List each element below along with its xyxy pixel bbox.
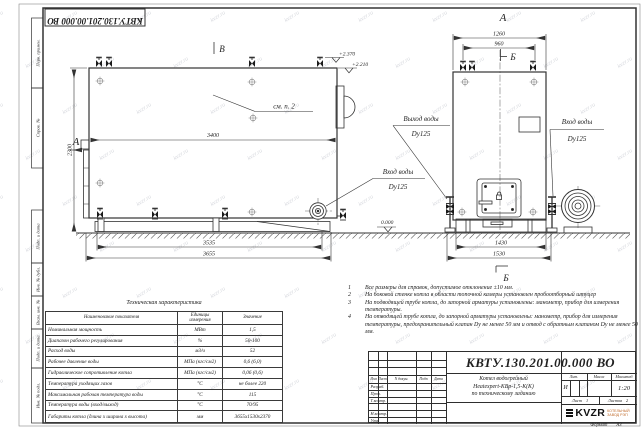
tech-row-value: 50-100 [223, 336, 282, 347]
kvzr-logo: KVZR КОТЕЛЬНЫЙ ЗАВОД РЭП [561, 404, 635, 422]
inlet-water-text: Вход воды [562, 118, 593, 126]
boiler-body-front [453, 72, 546, 220]
elev-2370: +2.370 [339, 52, 355, 58]
tech-row-unit: м3/ч [178, 347, 223, 358]
sampling-fitting-icon [249, 114, 258, 123]
sheets-cell: Листов 2 [599, 396, 637, 404]
margin-label: Инв. № дубл. [35, 267, 40, 293]
air-valve-icon [249, 58, 255, 69]
sheet-cell: Лист 1 [561, 396, 599, 404]
flue-outlet [344, 96, 355, 118]
safety-valve-icon [106, 58, 112, 69]
side-view-drawing: 3400 2300 3535 3655 А В [68, 42, 426, 262]
inlet-pipe-valve [547, 197, 557, 232]
mass-header: Масса [587, 373, 611, 380]
sheet-label: Лист [572, 398, 582, 403]
lifting-lug-icon [248, 208, 257, 217]
row-utv: Утв. [371, 418, 380, 423]
name-line: Котел водогрейный [479, 376, 528, 384]
row-nkontr: Н.контр. [371, 411, 388, 416]
tech-row-name: Температура воды (вход/выход) [46, 401, 178, 412]
lifting-lug-icon [530, 78, 539, 87]
title-block: КВТУ.130.201.00.000 ВО Котел водогрейный… [368, 351, 636, 423]
notes-block: 1 Все размеры для справок, допустимое от… [343, 285, 639, 336]
mark-b-label: В [219, 44, 225, 54]
tech-col-header: Значение [223, 312, 282, 325]
lifting-lug-icon [529, 208, 538, 217]
tech-row-unit: МВт [178, 325, 223, 336]
tech-row-name: Температура уходящих газов [46, 379, 178, 390]
margin-label: Подп. и дата [35, 223, 40, 251]
section-b-bottom: Б [496, 266, 509, 283]
note-number: 2 [343, 292, 365, 299]
note-text: На отводящей трубе котла, до запорной ар… [365, 314, 639, 336]
note-item: 2 На боковой стенке котла в области топо… [343, 292, 639, 299]
lit-value: И [561, 380, 570, 396]
rear-drain-valve-icon [340, 210, 346, 221]
tech-row-name: Максимальная рабочая температура воды [46, 390, 178, 401]
ground-line [76, 233, 630, 239]
tech-row-name: Диапазон рабочего регулирования [46, 336, 178, 347]
see-note-text: см. п. 2 [273, 103, 295, 111]
dim-960: 960 [495, 42, 504, 48]
sheets-value: 2 [626, 398, 628, 403]
lifting-lug-icon [248, 78, 257, 87]
inlet-water-text: Вход воды [383, 168, 414, 176]
sheet-value: 1 [586, 398, 588, 403]
tech-row-value: 0,6 (6,0) [223, 357, 282, 368]
safety-valve-icon [469, 62, 475, 73]
dim-1260: 1260 [493, 32, 505, 38]
row-razrab: Разраб. [371, 384, 385, 389]
logo-text: KVZR [575, 407, 605, 419]
inlet-dy-text: Dy125 [567, 135, 587, 143]
outlet-water-text: Выход воды [403, 115, 439, 123]
margin-stamp-column: Перв. примен. Справ. № Подп. и дата Инв.… [32, 18, 44, 423]
tech-row-name: Рабочее давление воды [46, 357, 178, 368]
elevation-marks: +2.370 +2.210 [325, 52, 368, 73]
tech-row-value: 70/95 [223, 401, 282, 412]
col-list: Лист [378, 375, 387, 383]
margin-label: Инв. № подл. [35, 383, 40, 409]
see-note-callout: см. п. 2 [213, 95, 313, 112]
lit-header: Лит. [561, 373, 587, 380]
scale-header: Масштаб [611, 373, 637, 380]
front-top-dimensions: 1260 960 [453, 32, 546, 71]
tech-characteristics-table: Техническая характеристика Наименование … [45, 300, 283, 423]
side-ladder [84, 150, 90, 218]
tech-row-unit: МПа (кгс/см2) [178, 357, 223, 368]
col-izm: Изм [369, 375, 378, 383]
front-inlet-label: Вход воды Dy125 [550, 118, 604, 196]
tech-row-value: не более 220 [223, 379, 282, 390]
tech-row-unit: °С [178, 390, 223, 401]
outlet-dy-text: Dy125 [411, 130, 431, 138]
col-ndokum: N докум. [387, 375, 416, 383]
safety-valve-icon [96, 58, 102, 69]
zero-elevation-mark: 0.000 [377, 220, 396, 232]
inlet-dy-text: Dy125 [388, 183, 408, 191]
col-data: Дата [431, 375, 446, 383]
tech-row-name: Габариты котла (длина х ширина х высота) [46, 411, 178, 422]
logo-bars-icon [566, 409, 573, 418]
lifting-lug-icon [96, 77, 105, 86]
dim-1430: 1430 [495, 240, 507, 247]
note-item: 3 На подводящей трубе котла, до запорной… [343, 300, 639, 315]
note-number: 4 [343, 314, 365, 336]
side-inlet-label: Вход воды Dy125 [326, 168, 425, 206]
tech-col-header: Наименование показателя [46, 312, 178, 325]
front-base [456, 219, 546, 232]
tech-row-value: 0,06 (0,6) [223, 368, 282, 379]
sheets-label: Листов [608, 398, 622, 403]
name-line: по техническому заданию [472, 391, 536, 399]
tech-row-name: Номинальная мощность [46, 325, 178, 336]
margin-label: Подп. и дата [35, 335, 40, 363]
tech-row-unit: МПа (кгс/см2) [178, 368, 223, 379]
margin-label: Перв. примен. [35, 39, 40, 67]
nameplate [519, 117, 540, 132]
drawing-sheet: kvzr.rukvzr.rukvzr.rukvzr.rukvzr.rukvzr.… [0, 0, 644, 430]
tech-row-unit: мм [178, 411, 223, 422]
note-text: На боковой стенке котла в области топочн… [365, 292, 639, 299]
tech-col-header: Единицы измерения [178, 312, 223, 325]
dim-3535: 3535 [202, 241, 215, 247]
inlet-flange [305, 198, 332, 225]
side-dimensions: 3400 2300 3535 3655 [68, 68, 336, 262]
note-item: 4 На отводящей трубе котла, до запорной … [343, 314, 639, 336]
dim-3400: 3400 [206, 132, 219, 139]
side-pipe-stub [81, 140, 89, 149]
furnace-door [477, 179, 521, 217]
tech-row-name: Гидравлическое сопротивление котла [46, 368, 178, 379]
format-value: А3 [616, 423, 621, 428]
tech-row-unit: % [178, 336, 223, 347]
row-prov: Пров. [371, 391, 381, 396]
front-view-title: А [499, 12, 507, 24]
safety-valve-icon [530, 62, 536, 73]
dim-1530: 1530 [493, 252, 505, 258]
tech-row-value: 3655х1530х2370 [223, 411, 282, 422]
lifting-lug-icon [458, 208, 467, 217]
tech-table-title: Техническая характеристика [45, 300, 283, 311]
tech-row-unit: °С [178, 379, 223, 390]
doc-number-top-box: КВТУ.130.201.00.000 ВО [45, 9, 145, 26]
tech-row-unit: °С [178, 401, 223, 412]
elev-0000: 0.000 [381, 220, 394, 226]
doc-number-top: КВТУ.130.201.00.000 ВО [47, 16, 144, 26]
section-b-top: Б [509, 52, 516, 62]
air-valve-icon [317, 58, 323, 69]
note-number: 3 [343, 300, 365, 315]
format-label: Формат А3 [576, 423, 636, 428]
dim-3655: 3655 [202, 252, 215, 258]
tech-row-value: 115 [223, 390, 282, 401]
tech-row-value: 52 [223, 347, 282, 358]
scale-value: 1:20 [611, 380, 637, 396]
lifting-lug-icon [96, 179, 105, 188]
titleblock-name: Котел водогрейный Heatexpert-КВр-1,5-К(К… [446, 373, 561, 402]
blower-fan [556, 186, 602, 233]
lifting-lug-icon [461, 78, 470, 87]
logo-subtitle-line: ЗАВОД РЭП [607, 413, 630, 417]
row-tkontr: Т.контр. [371, 398, 387, 403]
front-view-drawing: 1260 960 А Б [377, 12, 604, 283]
view-arrow-a-label: А [72, 136, 80, 148]
margin-label: Справ. № [35, 118, 40, 137]
boiler-body-side [89, 68, 337, 218]
titleblock-doc-number: КВТУ.130.201.00.000 ВО [446, 352, 635, 373]
margin-label: Взам. инв. № [35, 299, 40, 325]
section-b-label: Б [502, 273, 509, 283]
note-text: На подводящей трубе котла, до запорной а… [365, 300, 639, 315]
safety-valve-icon [460, 62, 466, 73]
tech-row-value: 1,5 [223, 325, 282, 336]
elev-2210: +2.210 [352, 62, 368, 68]
tech-row-name: Расход воды [46, 347, 178, 358]
format-word: Формат [590, 423, 607, 428]
note-number: 1 [343, 285, 365, 292]
col-podp: Подп [416, 375, 431, 383]
